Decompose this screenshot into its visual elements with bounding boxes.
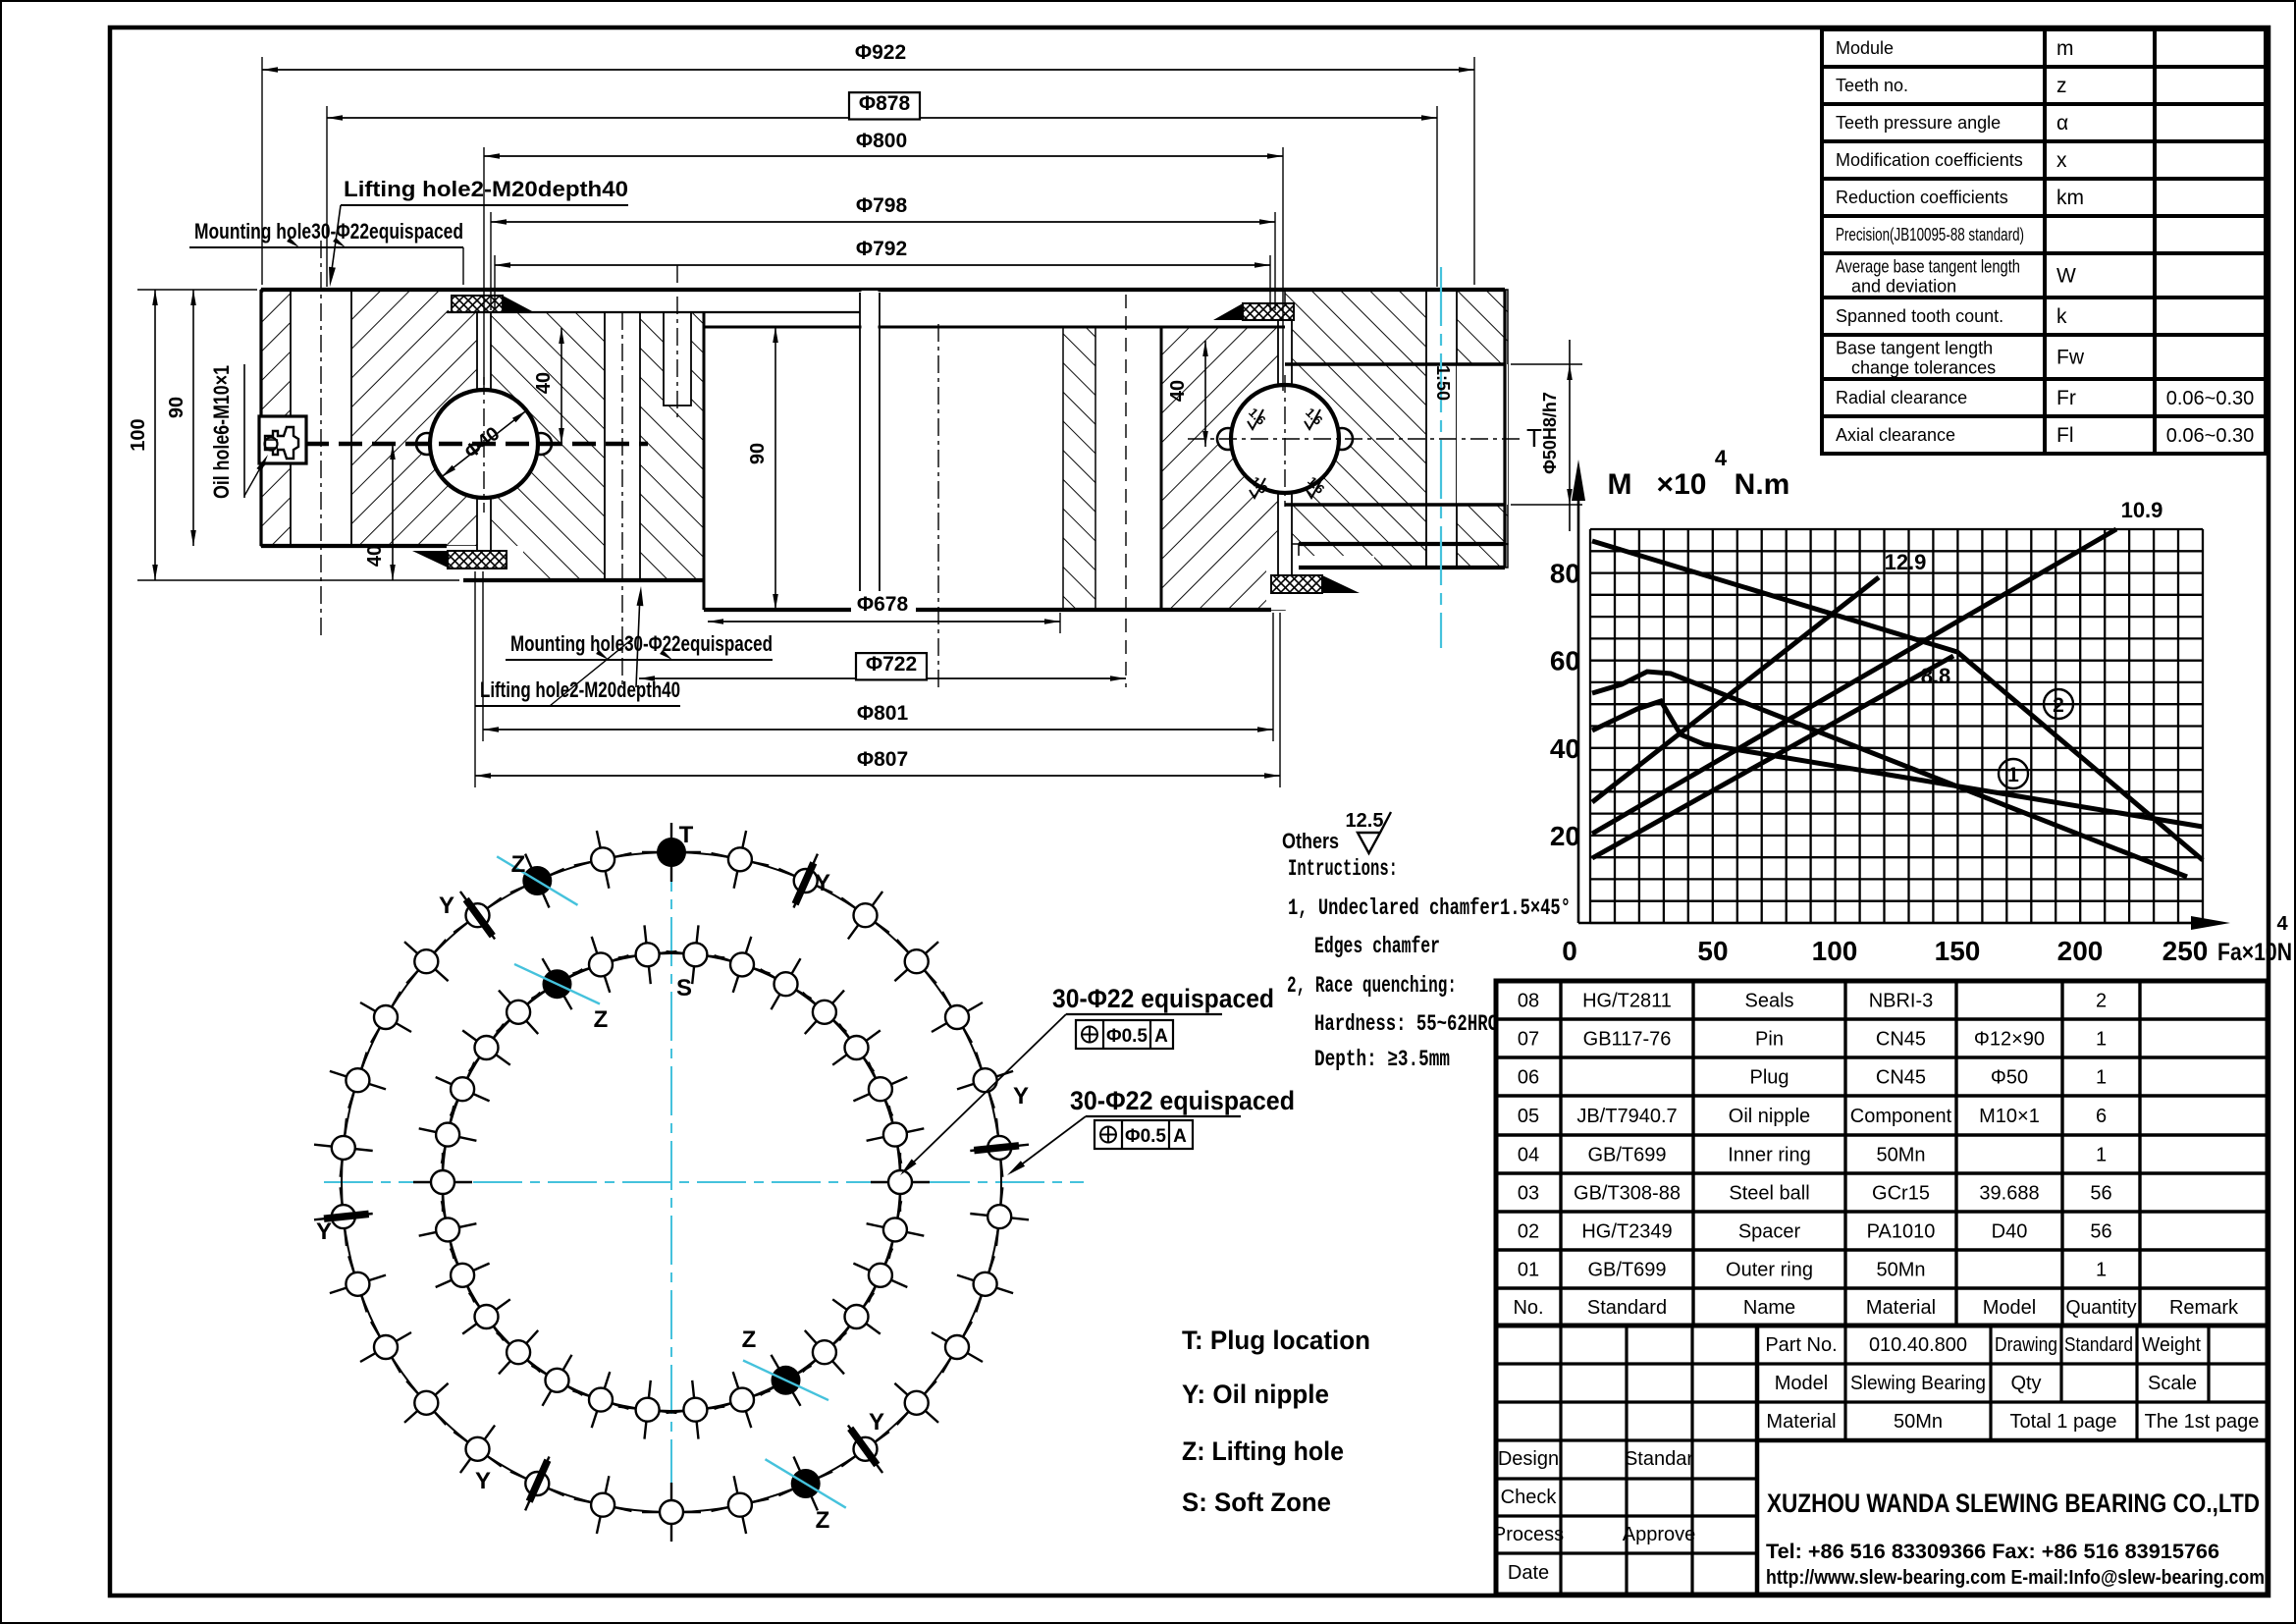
svg-text:150: 150 — [1935, 936, 1981, 966]
svg-text:Y: Y — [815, 870, 830, 896]
svg-text:1, Undeclared chamfer1.5×45°: 1, Undeclared chamfer1.5×45° — [1288, 895, 1571, 921]
svg-text:Y: Y — [439, 893, 454, 919]
svg-text:Material: Material — [1766, 1411, 1836, 1433]
svg-text:Material: Material — [1866, 1297, 1936, 1319]
svg-text:0.06~0.30: 0.06~0.30 — [2166, 425, 2255, 447]
svg-text:80: 80 — [1550, 559, 1580, 589]
svg-text:Y: Y — [316, 1218, 332, 1245]
svg-text:Φ801: Φ801 — [857, 702, 909, 725]
svg-text:XUZHOU WANDA SLEWING BEARIN: XUZHOU WANDA SLEWING BEARING CO.,LTD — [1767, 1489, 2260, 1518]
svg-text:20: 20 — [1550, 821, 1580, 851]
svg-text:The 1st page: The 1st page — [2145, 1411, 2260, 1433]
svg-text:Quantity: Quantity — [2066, 1297, 2137, 1319]
svg-text:M10×1: M10×1 — [1979, 1106, 2040, 1127]
svg-text:40: 40 — [364, 545, 386, 567]
svg-text:Φ678: Φ678 — [857, 593, 909, 616]
svg-text:Y: Oil nipple: Y: Oil nipple — [1182, 1380, 1329, 1409]
svg-text:2: 2 — [2053, 694, 2064, 717]
svg-text:Mounting hole30-Φ22equispaced: Mounting hole30-Φ22equispaced — [194, 219, 463, 244]
svg-text:1:50: 1:50 — [1433, 365, 1453, 401]
svg-text:Name: Name — [1743, 1297, 1795, 1319]
svg-text:Total 1 page: Total 1 page — [2010, 1411, 2117, 1433]
svg-text:Φ0.5: Φ0.5 — [1106, 1026, 1148, 1047]
svg-text:100: 100 — [1812, 936, 1858, 966]
svg-text:HG/T2349: HG/T2349 — [1581, 1221, 1672, 1243]
svg-text:Φ792: Φ792 — [856, 238, 907, 260]
svg-text:Weight: Weight — [2142, 1334, 2201, 1356]
svg-text:No.: No. — [1513, 1297, 1543, 1319]
svg-text:Standard: Standard — [1587, 1297, 1667, 1319]
svg-text:Standard: Standard — [2064, 1334, 2133, 1356]
svg-text:A: A — [1154, 1026, 1168, 1047]
svg-text:×10: ×10 — [1657, 468, 1707, 501]
svg-text:Qty: Qty — [2010, 1373, 2041, 1394]
svg-text:39.688: 39.688 — [1979, 1183, 2039, 1205]
svg-text:Date: Date — [1508, 1562, 1549, 1584]
svg-text:Hardness: 55~62HRC: Hardness: 55~62HRC — [1314, 1011, 1498, 1037]
svg-text:Z: Lifting hole: Z: Lifting hole — [1182, 1436, 1344, 1466]
svg-text:30-Φ22 equispaced: 30-Φ22 equispaced — [1070, 1086, 1295, 1115]
svg-text:50Mn: 50Mn — [1876, 1145, 1925, 1166]
svg-text:Model: Model — [1775, 1373, 1828, 1394]
svg-text:Drawing: Drawing — [1995, 1334, 2057, 1356]
svg-text:Plug: Plug — [1749, 1067, 1789, 1089]
svg-text:03: 03 — [1518, 1183, 1539, 1205]
svg-text:Oil nipple: Oil nipple — [1729, 1106, 1810, 1127]
svg-text:90: 90 — [166, 397, 187, 418]
svg-text:100: 100 — [128, 418, 149, 451]
svg-text:HG/T2811: HG/T2811 — [1582, 991, 1672, 1012]
svg-text:Φ0.5: Φ0.5 — [1125, 1126, 1166, 1147]
svg-text:04: 04 — [1518, 1145, 1539, 1166]
svg-text:z: z — [2056, 75, 2067, 97]
svg-text:Fw: Fw — [2056, 347, 2085, 369]
svg-text:k: k — [2056, 305, 2067, 328]
svg-text:08: 08 — [1518, 991, 1539, 1012]
svg-text:4: 4 — [1715, 446, 1728, 470]
svg-text:Others: Others — [1282, 829, 1339, 853]
svg-text:Inner ring: Inner ring — [1728, 1145, 1811, 1166]
svg-text:Base tangent length: Base tangent length — [1836, 339, 1993, 358]
svg-text:07: 07 — [1518, 1029, 1539, 1051]
svg-text:N.m: N.m — [1735, 468, 1790, 501]
svg-text:Check: Check — [1501, 1487, 1558, 1508]
svg-text:Φ798: Φ798 — [856, 194, 908, 217]
svg-text:Edges chamfer: Edges chamfer — [1314, 934, 1440, 959]
svg-text:and deviation: and deviation — [1851, 277, 1956, 297]
svg-text:Φ12×90: Φ12×90 — [1974, 1029, 2045, 1051]
svg-text:02: 02 — [1518, 1221, 1539, 1243]
svg-text:Pin: Pin — [1755, 1029, 1784, 1051]
svg-text:0.06~0.30: 0.06~0.30 — [2166, 388, 2255, 409]
svg-text:50Mn: 50Mn — [1876, 1260, 1925, 1281]
svg-text:1: 1 — [2096, 1067, 2107, 1089]
svg-text:Φ807: Φ807 — [857, 748, 908, 771]
svg-text:Radial clearance: Radial clearance — [1836, 388, 1967, 407]
svg-text:Slewing Bearing: Slewing Bearing — [1850, 1373, 1986, 1394]
svg-text:Intructions:: Intructions: — [1288, 856, 1398, 882]
svg-text:W: W — [2056, 265, 2076, 288]
svg-text:Teeth pressure angle: Teeth pressure angle — [1836, 113, 2001, 133]
svg-text:40: 40 — [533, 372, 555, 394]
svg-text:x: x — [2056, 149, 2067, 172]
svg-text:Y: Y — [475, 1468, 491, 1494]
svg-text:Design: Design — [1498, 1448, 1559, 1470]
svg-text:GB/T699: GB/T699 — [1587, 1260, 1666, 1281]
svg-text:GB117-76: GB117-76 — [1583, 1029, 1672, 1051]
svg-text:Remark: Remark — [2169, 1297, 2239, 1319]
svg-text:Z: Z — [594, 1006, 609, 1033]
svg-text:T: T — [679, 822, 694, 848]
svg-text:56: 56 — [2090, 1221, 2111, 1243]
svg-text:Average base tangent length: Average base tangent length — [1836, 257, 2020, 277]
svg-text:Z: Z — [816, 1507, 830, 1534]
svg-text:Component: Component — [1850, 1106, 1952, 1127]
svg-text:CN45: CN45 — [1876, 1067, 1926, 1089]
svg-text:2: 2 — [2096, 991, 2107, 1012]
svg-text:05: 05 — [1518, 1106, 1539, 1127]
svg-text:Φ722: Φ722 — [866, 653, 917, 676]
svg-text:Z: Z — [742, 1326, 757, 1353]
svg-text:Part No.: Part No. — [1765, 1334, 1837, 1356]
svg-text:Teeth no.: Teeth no. — [1836, 76, 1908, 95]
svg-text:km: km — [2056, 187, 2084, 209]
svg-text:α: α — [2056, 112, 2068, 135]
svg-text:Modification coefficients: Modification coefficients — [1836, 150, 2023, 170]
svg-text:Model: Model — [1983, 1297, 2036, 1319]
svg-text:0: 0 — [1562, 936, 1577, 966]
svg-text:010.40.800: 010.40.800 — [1869, 1334, 1967, 1356]
svg-text:NBRI-3: NBRI-3 — [1869, 991, 1934, 1012]
svg-text:Oil hole6-M10×1: Oil hole6-M10×1 — [209, 365, 234, 499]
svg-text:Axial clearance: Axial clearance — [1836, 425, 1955, 445]
svg-text:Reduction coefficients: Reduction coefficients — [1836, 188, 2008, 207]
svg-text:90: 90 — [747, 443, 769, 464]
svg-text:Spanned tooth count.: Spanned tooth count. — [1836, 306, 2003, 326]
svg-text:m: m — [2056, 37, 2074, 60]
svg-text:A: A — [1173, 1126, 1187, 1147]
svg-text:Standar: Standar — [1625, 1448, 1693, 1470]
svg-text:Lifting hole2-M20depth40: Lifting hole2-M20depth40 — [344, 177, 628, 201]
svg-text:Fr: Fr — [2056, 387, 2076, 409]
svg-text:Φ50: Φ50 — [1991, 1067, 2028, 1089]
svg-text:Precision(JB10095-88 standard: Precision(JB10095-88 standard) — [1836, 225, 2024, 244]
svg-text:01: 01 — [1518, 1260, 1539, 1281]
svg-text:Seals: Seals — [1744, 991, 1793, 1012]
svg-text:Depth: ≥3.5mm: Depth: ≥3.5mm — [1314, 1047, 1450, 1072]
svg-text:Fl: Fl — [2056, 424, 2074, 447]
svg-text:Y: Y — [1013, 1083, 1029, 1110]
svg-text:http://www.slew-bearing.com: http://www.slew-bearing.com E-mail:Info@… — [1766, 1567, 2265, 1589]
svg-text:D40: D40 — [1992, 1221, 2028, 1243]
svg-text:Scale: Scale — [2148, 1373, 2197, 1394]
svg-text:1: 1 — [2096, 1029, 2107, 1051]
svg-text:Z: Z — [511, 851, 526, 878]
svg-text:JB/T7940.7: JB/T7940.7 — [1576, 1106, 1677, 1127]
svg-text:250: 250 — [2163, 936, 2209, 966]
svg-text:Process: Process — [1493, 1524, 1564, 1545]
svg-text:T: T — [1526, 423, 1542, 453]
svg-text:10.9: 10.9 — [2121, 498, 2163, 522]
svg-text:4: 4 — [2276, 913, 2288, 935]
svg-text:2, Race quenching:: 2, Race quenching: — [1287, 973, 1457, 999]
svg-text:12.5: 12.5 — [1346, 810, 1384, 832]
svg-text:56: 56 — [2090, 1183, 2111, 1205]
svg-text:T: Plug location: T: Plug location — [1182, 1326, 1370, 1355]
svg-text:6: 6 — [2096, 1106, 2107, 1127]
svg-text:06: 06 — [1518, 1067, 1539, 1089]
svg-text:CN45: CN45 — [1876, 1029, 1926, 1051]
svg-text:Φ878: Φ878 — [859, 92, 911, 115]
svg-text:50: 50 — [1697, 936, 1728, 966]
svg-text:PA1010: PA1010 — [1867, 1221, 1936, 1243]
svg-text:8.8: 8.8 — [1921, 664, 1951, 688]
svg-text:Fa×10N: Fa×10N — [2217, 939, 2292, 966]
svg-text:GB/T308-88: GB/T308-88 — [1574, 1183, 1681, 1205]
svg-text:1: 1 — [2096, 1260, 2107, 1281]
svg-text:S: Soft Zone: S: Soft Zone — [1182, 1488, 1331, 1517]
svg-text:Module: Module — [1836, 38, 1894, 58]
svg-text:change tolerances: change tolerances — [1851, 358, 1996, 378]
svg-text:Φ922: Φ922 — [855, 41, 906, 64]
svg-text:Spacer: Spacer — [1738, 1221, 1801, 1243]
svg-text:Approve: Approve — [1623, 1524, 1696, 1545]
svg-text:GCr15: GCr15 — [1872, 1183, 1930, 1205]
svg-text:12.9: 12.9 — [1885, 550, 1927, 574]
svg-text:40: 40 — [1550, 733, 1580, 764]
svg-text:60: 60 — [1550, 646, 1580, 677]
svg-text:Φ800: Φ800 — [856, 130, 907, 152]
svg-text:M: M — [1608, 468, 1632, 501]
svg-text:Outer ring: Outer ring — [1726, 1260, 1813, 1281]
svg-text:30-Φ22 equispaced: 30-Φ22 equispaced — [1052, 984, 1274, 1013]
svg-text:1: 1 — [2096, 1145, 2107, 1166]
svg-text:S: S — [676, 975, 692, 1001]
svg-text:200: 200 — [2057, 936, 2104, 966]
svg-text:Φ50H8/h7: Φ50H8/h7 — [1540, 392, 1560, 474]
svg-text:1: 1 — [2007, 764, 2019, 786]
svg-text:50Mn: 50Mn — [1894, 1411, 1943, 1433]
svg-text:Tel: +86 516 83309366: Tel: +86 516 83309366 Fax: +86 516 83915… — [1766, 1541, 2219, 1563]
svg-text:Steel ball: Steel ball — [1729, 1183, 1809, 1205]
svg-text:Y: Y — [869, 1409, 884, 1435]
svg-text:Mounting hole30-Φ22equispaced: Mounting hole30-Φ22equispaced — [510, 631, 773, 656]
svg-text:GB/T699: GB/T699 — [1587, 1145, 1666, 1166]
svg-text:40: 40 — [1167, 380, 1189, 402]
